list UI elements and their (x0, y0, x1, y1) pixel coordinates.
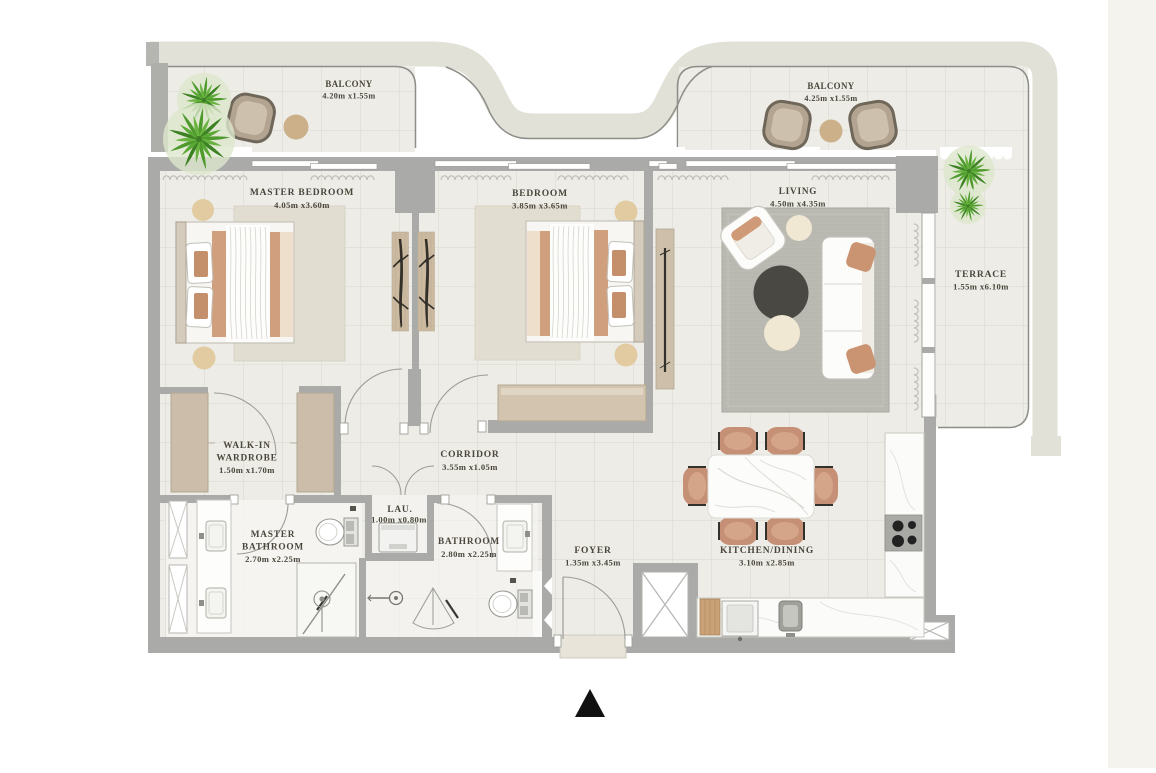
svg-text:TERRACE: TERRACE (955, 270, 1007, 280)
svg-text:4.50m x4.35m: 4.50m x4.35m (770, 199, 826, 209)
svg-text:4.20m x1.55m: 4.20m x1.55m (322, 92, 375, 101)
svg-text:2.70m x2.25m: 2.70m x2.25m (245, 554, 301, 564)
svg-text:BATHROOM: BATHROOM (242, 543, 304, 553)
svg-text:MASTER BEDROOM: MASTER BEDROOM (250, 188, 354, 198)
svg-text:LIVING: LIVING (779, 186, 818, 196)
svg-text:4.05m x3.60m: 4.05m x3.60m (274, 200, 330, 210)
svg-text:LAU.: LAU. (387, 505, 412, 515)
svg-text:MASTER: MASTER (251, 530, 296, 540)
svg-text:1.50m x1.70m: 1.50m x1.70m (219, 465, 275, 475)
svg-text:WALK-IN: WALK-IN (223, 441, 270, 451)
svg-text:BEDROOM: BEDROOM (512, 189, 568, 199)
svg-text:FOYER: FOYER (574, 546, 611, 556)
svg-text:3.55m x1.05m: 3.55m x1.05m (442, 462, 498, 472)
svg-text:1.55m x6.10m: 1.55m x6.10m (953, 282, 1009, 292)
svg-text:3.10m x2.85m: 3.10m x2.85m (739, 558, 795, 568)
svg-text:KITCHEN/DINING: KITCHEN/DINING (720, 546, 814, 556)
svg-text:3.85m x3.65m: 3.85m x3.65m (512, 201, 568, 211)
svg-text:BATHROOM: BATHROOM (438, 537, 500, 547)
svg-text:4.25m x1.55m: 4.25m x1.55m (804, 94, 857, 103)
svg-text:2.80m x2.25m: 2.80m x2.25m (441, 549, 497, 559)
svg-text:CORRIDOR: CORRIDOR (440, 450, 499, 460)
svg-text:BALCONY: BALCONY (807, 81, 854, 91)
svg-text:1.35m x3.45m: 1.35m x3.45m (565, 558, 621, 568)
svg-text:1.00m x0.80m: 1.00m x0.80m (371, 515, 427, 525)
svg-text:WARDROBE: WARDROBE (216, 454, 277, 464)
svg-text:BALCONY: BALCONY (325, 79, 372, 89)
